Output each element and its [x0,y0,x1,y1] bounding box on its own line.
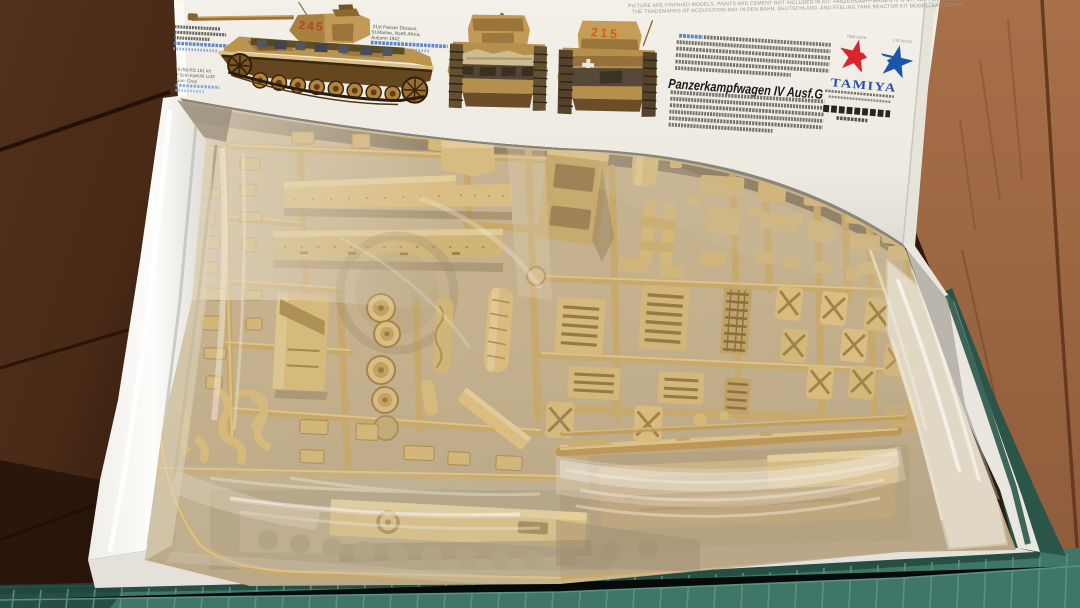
svg-text:215: 215 [590,25,617,41]
svg-text:245: 245 [298,18,323,34]
